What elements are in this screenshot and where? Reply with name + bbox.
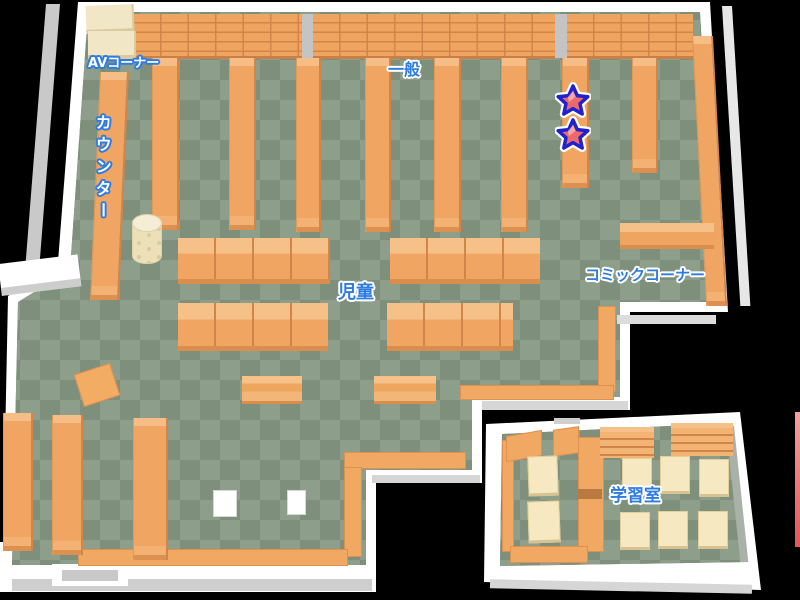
wall	[722, 6, 750, 306]
white-fixture	[287, 490, 306, 515]
door-gap	[554, 418, 580, 424]
wall-bookshelf-band	[313, 14, 555, 59]
wall-bookshelf-band	[134, 14, 302, 59]
bookshelf	[553, 426, 579, 457]
bookshelf	[501, 58, 528, 232]
wall-shelf	[460, 385, 614, 400]
study-table	[527, 455, 558, 496]
label-av-corner: AVコーナー	[88, 57, 159, 71]
wall-shelf	[344, 467, 362, 557]
wall-pillar	[555, 14, 567, 58]
study-table	[527, 500, 560, 543]
study-table	[699, 459, 729, 497]
bookshelf	[52, 415, 83, 555]
label-children: 児童	[338, 284, 374, 303]
bookshelf	[3, 413, 33, 551]
kiosk-cylinder-top	[132, 214, 162, 232]
wall	[482, 401, 628, 410]
red-edge-marker	[795, 412, 800, 547]
study-table	[620, 512, 650, 550]
low-bookshelf	[387, 303, 513, 351]
bookshelf	[152, 58, 179, 230]
wall	[25, 4, 60, 266]
low-bookshelf	[178, 238, 330, 284]
label-counter: カウンター	[93, 114, 110, 224]
low-bookshelf	[178, 303, 328, 351]
bookshelf	[365, 58, 391, 232]
bookshelf	[229, 58, 256, 230]
study-table	[658, 511, 688, 549]
study-table	[660, 456, 690, 494]
bench	[242, 376, 302, 404]
bookshelf	[632, 58, 658, 173]
white-fixture	[213, 490, 237, 517]
wall-shelf	[598, 306, 616, 392]
wall	[372, 475, 480, 483]
wall-shelf	[78, 549, 348, 566]
bench	[374, 376, 436, 404]
bookshelf	[671, 423, 733, 456]
wall	[617, 315, 716, 324]
divider-gap	[578, 489, 602, 499]
bookshelf	[600, 427, 654, 458]
av-shelf	[88, 31, 136, 59]
bookshelf	[434, 58, 461, 232]
bookshelf	[620, 223, 714, 249]
wall-pillar	[302, 14, 313, 58]
low-bookshelf	[390, 238, 540, 284]
label-general: 一般	[388, 62, 420, 79]
wall-shelf	[344, 452, 466, 469]
label-comic-corner: コミックコーナー	[585, 268, 705, 284]
wall-bookshelf-band	[567, 14, 693, 59]
entrance-door-inner	[62, 570, 118, 581]
bookshelf	[133, 418, 168, 560]
bookshelf	[296, 58, 321, 232]
library-floor-map: AVコーナー カウンター 一般 児童 コミックコーナー 学習室	[0, 0, 800, 600]
study-table	[698, 511, 728, 549]
label-study-room: 学習室	[610, 488, 661, 506]
wall-shelf	[510, 546, 588, 563]
av-shelf	[86, 4, 135, 34]
bookshelf-with-stars	[562, 58, 589, 188]
